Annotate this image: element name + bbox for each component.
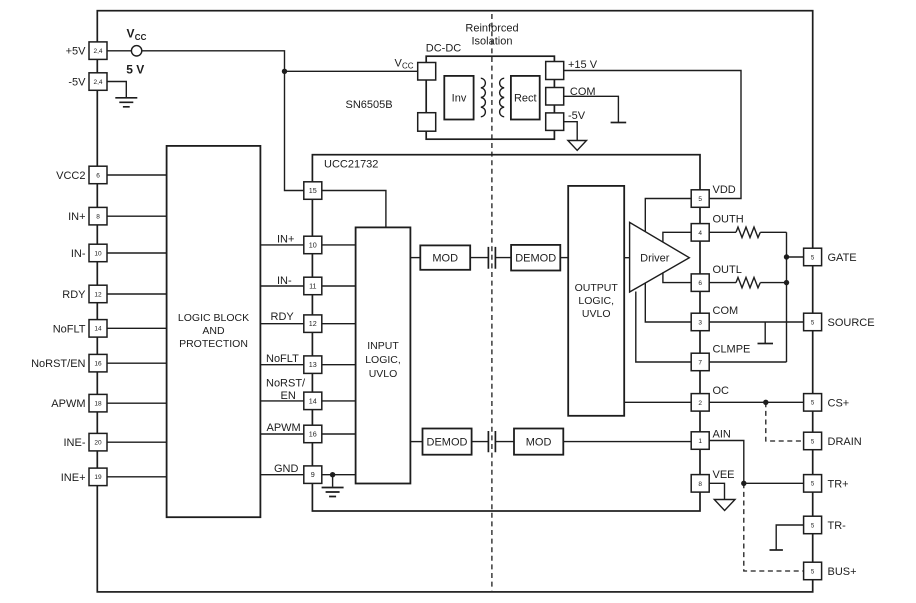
svg-text:OUTH: OUTH	[713, 214, 744, 226]
svg-text:NoRST/: NoRST/	[266, 378, 306, 390]
svg-text:GND: GND	[274, 463, 299, 475]
svg-text:RDY: RDY	[62, 289, 86, 301]
svg-text:20: 20	[94, 440, 102, 447]
svg-text:-5V: -5V	[568, 110, 586, 122]
svg-text:MOD: MOD	[432, 253, 458, 265]
svg-text:7: 7	[698, 360, 702, 367]
svg-text:12: 12	[94, 291, 102, 298]
svg-text:4: 4	[698, 230, 702, 237]
svg-text:SOURCE: SOURCE	[828, 317, 875, 329]
svg-text:CLMPE: CLMPE	[713, 344, 751, 356]
svg-text:TR-: TR-	[828, 520, 847, 532]
svg-text:INE-: INE-	[64, 437, 86, 449]
svg-text:IN+: IN+	[277, 234, 294, 246]
svg-text:16: 16	[309, 430, 317, 439]
svg-text:11: 11	[309, 282, 316, 291]
svg-text:CS+: CS+	[828, 397, 850, 409]
svg-text:3: 3	[698, 320, 702, 327]
svg-text:+5V: +5V	[66, 46, 87, 58]
svg-text:2: 2	[698, 400, 702, 407]
svg-text:-5V: -5V	[68, 77, 86, 89]
svg-text:MOD: MOD	[526, 437, 552, 449]
svg-text:14: 14	[94, 326, 102, 333]
svg-text:DC-DC: DC-DC	[426, 43, 461, 55]
svg-text:2,4: 2,4	[93, 79, 102, 86]
svg-text:EN: EN	[281, 390, 296, 402]
svg-text:SN6505B: SN6505B	[346, 99, 393, 111]
svg-text:10: 10	[309, 240, 317, 249]
svg-text:Isolation: Isolation	[472, 36, 513, 48]
svg-text:DEMOD: DEMOD	[427, 437, 468, 449]
svg-text:NoFLT: NoFLT	[53, 323, 86, 335]
svg-text:5: 5	[698, 196, 702, 203]
svg-text:OUTPUT: OUTPUT	[575, 282, 619, 294]
svg-text:Rect: Rect	[514, 93, 537, 105]
svg-text:LOGIC BLOCK: LOGIC BLOCK	[178, 312, 249, 324]
svg-text:CC: CC	[135, 33, 147, 42]
svg-text:OUTL: OUTL	[713, 264, 742, 276]
svg-text:VEE: VEE	[713, 469, 735, 481]
svg-text:13: 13	[309, 360, 317, 369]
svg-text:15: 15	[309, 186, 317, 195]
svg-text:1: 1	[698, 438, 702, 445]
svg-text:BUS+: BUS+	[828, 566, 857, 578]
svg-text:COM: COM	[713, 305, 739, 317]
svg-text:14: 14	[309, 396, 317, 405]
svg-text:VCC2: VCC2	[56, 170, 85, 182]
svg-text:APWM: APWM	[51, 398, 85, 410]
svg-text:8: 8	[96, 214, 100, 221]
svg-text:5 V: 5 V	[126, 63, 144, 77]
svg-text:DRAIN: DRAIN	[828, 436, 862, 448]
svg-text:OC: OC	[713, 385, 730, 397]
svg-text:PROTECTION: PROTECTION	[179, 338, 248, 350]
svg-text:INE+: INE+	[61, 472, 86, 484]
svg-text:Reinforced: Reinforced	[465, 23, 518, 35]
svg-text:16: 16	[94, 361, 102, 368]
svg-text:UCC21732: UCC21732	[324, 159, 378, 171]
svg-text:NoFLT: NoFLT	[266, 353, 299, 365]
svg-text:IN-: IN-	[277, 275, 292, 287]
svg-text:+15 V: +15 V	[568, 59, 598, 71]
svg-text:12: 12	[309, 319, 317, 328]
svg-text:UVLO: UVLO	[369, 368, 398, 380]
svg-text:10: 10	[94, 250, 102, 257]
svg-text:9: 9	[311, 470, 315, 479]
svg-text:INPUT: INPUT	[367, 340, 399, 352]
svg-text:CC: CC	[402, 62, 414, 71]
svg-text:NoRST/EN: NoRST/EN	[31, 358, 85, 370]
svg-text:6: 6	[698, 280, 702, 287]
svg-text:LOGIC,: LOGIC,	[365, 354, 401, 366]
svg-text:IN+: IN+	[68, 211, 85, 223]
svg-text:LOGIC,: LOGIC,	[578, 295, 614, 307]
svg-text:8: 8	[698, 481, 702, 488]
svg-text:6: 6	[96, 172, 100, 179]
svg-text:18: 18	[94, 401, 102, 408]
svg-text:Driver: Driver	[640, 253, 670, 265]
svg-text:APWM: APWM	[267, 422, 301, 434]
svg-text:VDD: VDD	[713, 184, 736, 196]
svg-text:RDY: RDY	[271, 311, 295, 323]
svg-text:TR+: TR+	[828, 478, 849, 490]
svg-text:GATE: GATE	[828, 252, 857, 264]
svg-text:DEMOD: DEMOD	[515, 253, 556, 265]
svg-text:AND: AND	[202, 325, 225, 337]
svg-text:2,4: 2,4	[93, 48, 102, 55]
svg-text:Inv: Inv	[452, 93, 467, 105]
svg-text:IN-: IN-	[71, 248, 86, 260]
svg-text:19: 19	[94, 474, 102, 481]
svg-text:UVLO: UVLO	[582, 308, 611, 320]
svg-text:V: V	[127, 27, 135, 41]
svg-text:AIN: AIN	[713, 429, 731, 441]
